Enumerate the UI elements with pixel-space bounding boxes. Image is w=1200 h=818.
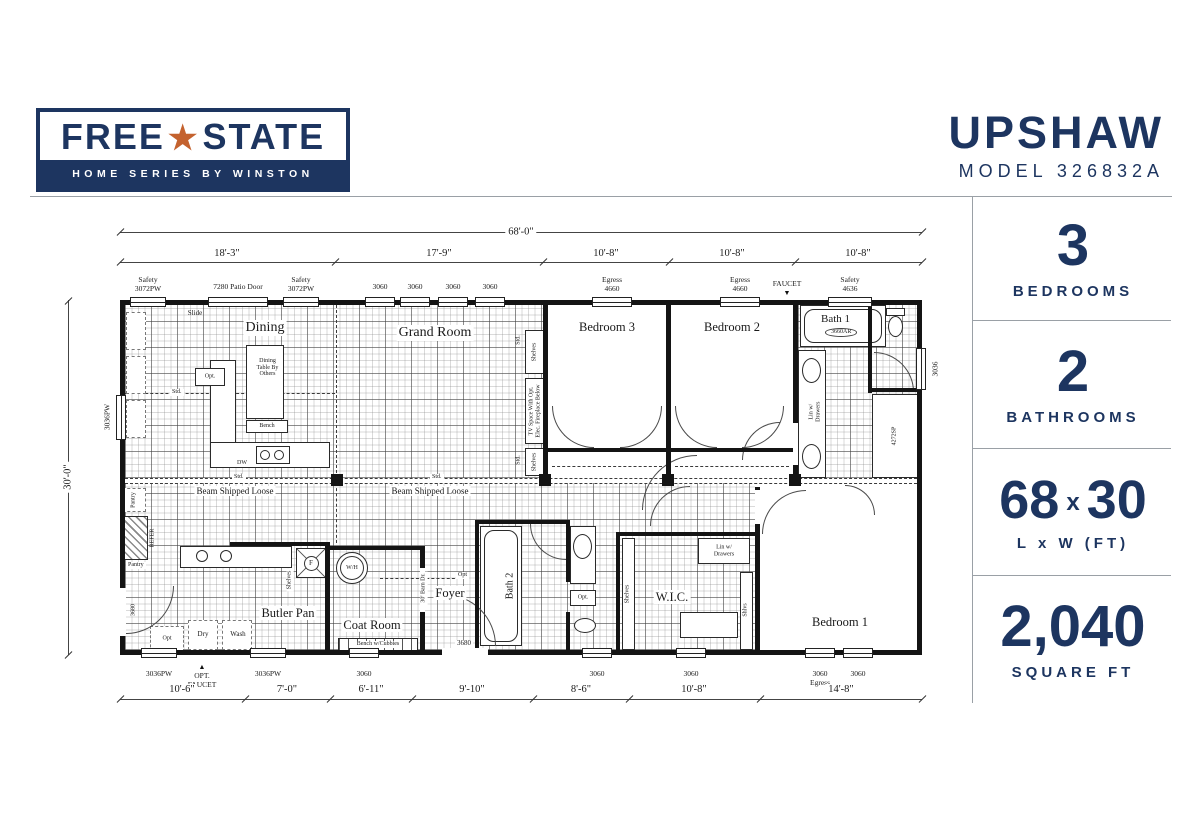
dim-bottom-7: 14'-8" xyxy=(825,684,856,695)
dim-line-bottom xyxy=(120,699,922,700)
shlvs-label: Shlvs xyxy=(743,601,750,618)
slide-label: Slide xyxy=(186,310,204,318)
beam-label: Beam Shipped Loose xyxy=(195,486,276,496)
window-egress-4660 xyxy=(592,297,632,307)
linen-drawers-label: Lin w/ Drawers xyxy=(808,395,821,429)
window-3060 xyxy=(400,297,430,307)
bath1-shower-wall xyxy=(868,388,922,392)
window-label-3060: 3060 xyxy=(356,670,373,679)
front-door-opening xyxy=(442,648,488,658)
wall-butler-coat xyxy=(325,546,330,655)
window-label-safety-3072pw: Safety 3072PW xyxy=(287,276,315,293)
logo-text-state: STATE xyxy=(202,116,325,158)
window-3060 xyxy=(475,297,505,307)
window-3036-right xyxy=(916,348,926,390)
window-3060 xyxy=(582,648,612,658)
room-label-bed2: Bedroom 2 xyxy=(702,320,762,334)
dim-top-1: 18'-3" xyxy=(211,248,242,259)
room-label-wic: W.I.C. xyxy=(654,590,691,604)
length-value: 68 xyxy=(999,473,1059,527)
side-door-opening xyxy=(116,588,126,636)
bathrooms-label: BATHROOMS xyxy=(1006,409,1139,426)
bath2-wall-top xyxy=(475,520,570,524)
dim-top-3: 10'-8" xyxy=(590,248,621,259)
window-safety-3072pw xyxy=(130,297,166,307)
std-label: Std. xyxy=(170,389,184,396)
side-door-label: 3680 xyxy=(131,602,138,618)
star-icon: ★ xyxy=(168,118,200,157)
window-label-3036pw: 3036PW xyxy=(145,670,173,679)
dim-bottom-2: 7'-0" xyxy=(274,684,300,695)
dim-overall-width: 68'-0" xyxy=(505,227,536,238)
tv-space-label: TV Space With Opt. Elec. Fireplace Below xyxy=(528,377,541,445)
window-safety-3072pw xyxy=(283,297,319,307)
spec-bedrooms: 3 BEDROOMS xyxy=(973,196,1173,320)
std-label: Std. xyxy=(516,453,523,467)
opt-label: Opt xyxy=(161,636,174,643)
front-door-label: 3680 xyxy=(455,640,473,648)
width-value: 30 xyxy=(1087,473,1147,527)
shower-label: 4272SP xyxy=(892,425,899,448)
bath1-hall-door-opening xyxy=(793,423,798,465)
spec-size: 68 x 30 L x W (FT) xyxy=(973,449,1173,575)
window-egress-4660 xyxy=(720,297,760,307)
window-3060 xyxy=(438,297,468,307)
dim-bottom-3: 6'-11" xyxy=(355,684,386,695)
room-label-coat: Coat Room xyxy=(341,618,402,632)
dishwasher-label: DW xyxy=(235,460,249,467)
wic-wall-left xyxy=(616,532,620,655)
bath2-wall-right xyxy=(566,520,570,582)
wic-wall-top xyxy=(616,532,759,536)
window-3036pw-left xyxy=(116,395,126,440)
bench-label: Bench xyxy=(257,423,276,430)
std-label: Std. xyxy=(516,333,523,347)
opt-label: Opt. xyxy=(576,595,591,602)
linen-drawers-label: Lin w/ Drawers xyxy=(712,544,736,557)
model-number: MODEL 326832A xyxy=(948,161,1164,182)
dim-top-5: 10'-8" xyxy=(842,248,873,259)
room-label-bed3: Bedroom 3 xyxy=(577,320,637,334)
dim-top-4: 10'-8" xyxy=(716,248,747,259)
window-label-safety-3072pw: Safety 3072PW xyxy=(134,276,162,293)
room-label-bath2: Bath 2 xyxy=(504,571,515,601)
logo-wordmark: FREE★STATE xyxy=(40,112,346,162)
barn-door-label: 30' Barn Dr. xyxy=(421,571,428,604)
window-3036pw xyxy=(141,648,177,658)
window-label-3060: 3060 xyxy=(407,283,424,292)
window-3060 xyxy=(676,648,706,658)
room-label-bed1: Bedroom 1 xyxy=(810,615,870,629)
coat-wall xyxy=(330,546,422,550)
sqft-label: SQUARE FT xyxy=(1012,664,1135,681)
std-label: Std. xyxy=(430,474,444,481)
dining-table-label: Dining Table By Others xyxy=(249,358,286,378)
bed2-closet-wall xyxy=(671,448,793,452)
butler-wall xyxy=(230,542,330,546)
wall-bed3-bed2 xyxy=(666,300,671,480)
model-name: UPSHAW xyxy=(948,110,1164,155)
window-label-3036-right: 3036 xyxy=(932,361,941,378)
dim-bottom-5: 8'-6" xyxy=(568,684,594,695)
specs-sidebar: 3 BEDROOMS 2 BATHROOMS 68 x 30 L x W (FT… xyxy=(973,196,1173,703)
window-label-3060: 3060 xyxy=(482,283,499,292)
dryer-label: Dry xyxy=(196,631,211,639)
faucet-label: FAUCET xyxy=(772,280,803,289)
window-3060 xyxy=(843,648,873,658)
size-label: L x W (FT) xyxy=(1017,535,1129,552)
std-label: Std. xyxy=(232,474,246,481)
bedrooms-value: 3 xyxy=(1057,217,1089,275)
window-3060-egress xyxy=(805,648,835,658)
dim-bottom-1: 10'-6" xyxy=(166,684,197,695)
wall-post xyxy=(789,474,801,486)
refer-label: REFER xyxy=(150,527,157,550)
opt-label: Opt. xyxy=(203,374,218,381)
window-label-safety-4636: Safety 4636 xyxy=(839,276,860,293)
faucet-marker-icon: ▼ xyxy=(783,290,792,297)
window-label-egress-4660: Egress 4660 xyxy=(601,276,623,293)
spec-bathrooms: 2 BATHROOMS xyxy=(973,321,1173,448)
sqft-value: 2,040 xyxy=(1000,598,1145,656)
shelves-label: Shelves xyxy=(287,569,294,592)
dim-side-height: 30'-0" xyxy=(63,461,74,492)
opt-faucet-marker-icon: ▲ xyxy=(198,664,207,671)
bath1-toilet-wall xyxy=(868,305,872,393)
wall-post xyxy=(662,474,674,486)
window-3036pw xyxy=(250,648,286,658)
bed3-closet-wall xyxy=(548,448,666,452)
bench-cubbies-label: Bench w/Cubbies xyxy=(355,641,402,648)
opt-label: Opt xyxy=(456,572,469,579)
pantry-label: Pantry xyxy=(126,562,146,569)
room-label-butler: Butler Pan xyxy=(259,606,316,620)
window-label-3060: 3060 xyxy=(850,670,867,679)
window-label-3036pw: 3036PW xyxy=(254,670,282,679)
pantry-label: Pantry xyxy=(131,490,138,510)
bathrooms-value: 2 xyxy=(1057,343,1089,401)
patio-door xyxy=(208,297,268,307)
dim-bottom-6: 10'-8" xyxy=(678,684,709,695)
dim-top-2: 17'-9" xyxy=(423,248,454,259)
wall-post xyxy=(539,474,551,486)
room-label-bath1: Bath 1 xyxy=(819,313,852,325)
window-label-3060: 3060 xyxy=(683,670,700,679)
bath2-wall-left xyxy=(475,520,479,655)
window-label-3036pw-left: 3036PW xyxy=(104,403,113,431)
floor-plan: 68'-0" 18'-3" 17'-9" 10'-8" 10'-8" 10'-8… xyxy=(50,220,970,720)
window-label-3060: 3060 xyxy=(589,670,606,679)
shelves-label: Shelves xyxy=(625,583,632,606)
beam-label: Beam Shipped Loose xyxy=(390,486,471,496)
window-label-patio-door: 7280 Patio Door xyxy=(212,283,264,292)
bedrooms-label: BEDROOMS xyxy=(1013,283,1133,300)
dim-line-top-segments xyxy=(120,262,922,263)
plan-title-block: UPSHAW MODEL 326832A xyxy=(948,110,1164,182)
window-3060 xyxy=(349,648,379,658)
logo-text-free: FREE xyxy=(61,116,165,158)
wall-post xyxy=(331,474,343,486)
dim-bottom-4: 9'-10" xyxy=(456,684,487,695)
room-label-foyer: Foyer xyxy=(433,586,466,600)
logo-tagline: HOME SERIES BY WINSTON xyxy=(40,160,346,188)
window-label-3060: 3060 xyxy=(445,283,462,292)
wall-grand-bed3 xyxy=(543,300,548,480)
freestate-logo: FREE★STATE HOME SERIES BY WINSTON xyxy=(36,108,350,192)
by-symbol: x xyxy=(1066,489,1079,517)
shelves-label: Shelves xyxy=(532,451,539,474)
window-3060 xyxy=(365,297,395,307)
tub-model-label: 3660AR xyxy=(825,328,857,337)
window-label-egress-4660: Egress 4660 xyxy=(729,276,751,293)
room-label-grand: Grand Room xyxy=(397,325,474,341)
bath2-wall-right2 xyxy=(566,612,570,655)
room-label-dining: Dining xyxy=(244,320,287,336)
shelves-label: Shelves xyxy=(532,341,539,364)
washer-label: Wash xyxy=(228,631,247,639)
spec-sqft: 2,040 SQUARE FT xyxy=(973,576,1173,703)
window-safety-4636 xyxy=(828,297,872,307)
window-label-3060: 3060 xyxy=(372,283,389,292)
bed1-door-opening xyxy=(755,490,760,524)
